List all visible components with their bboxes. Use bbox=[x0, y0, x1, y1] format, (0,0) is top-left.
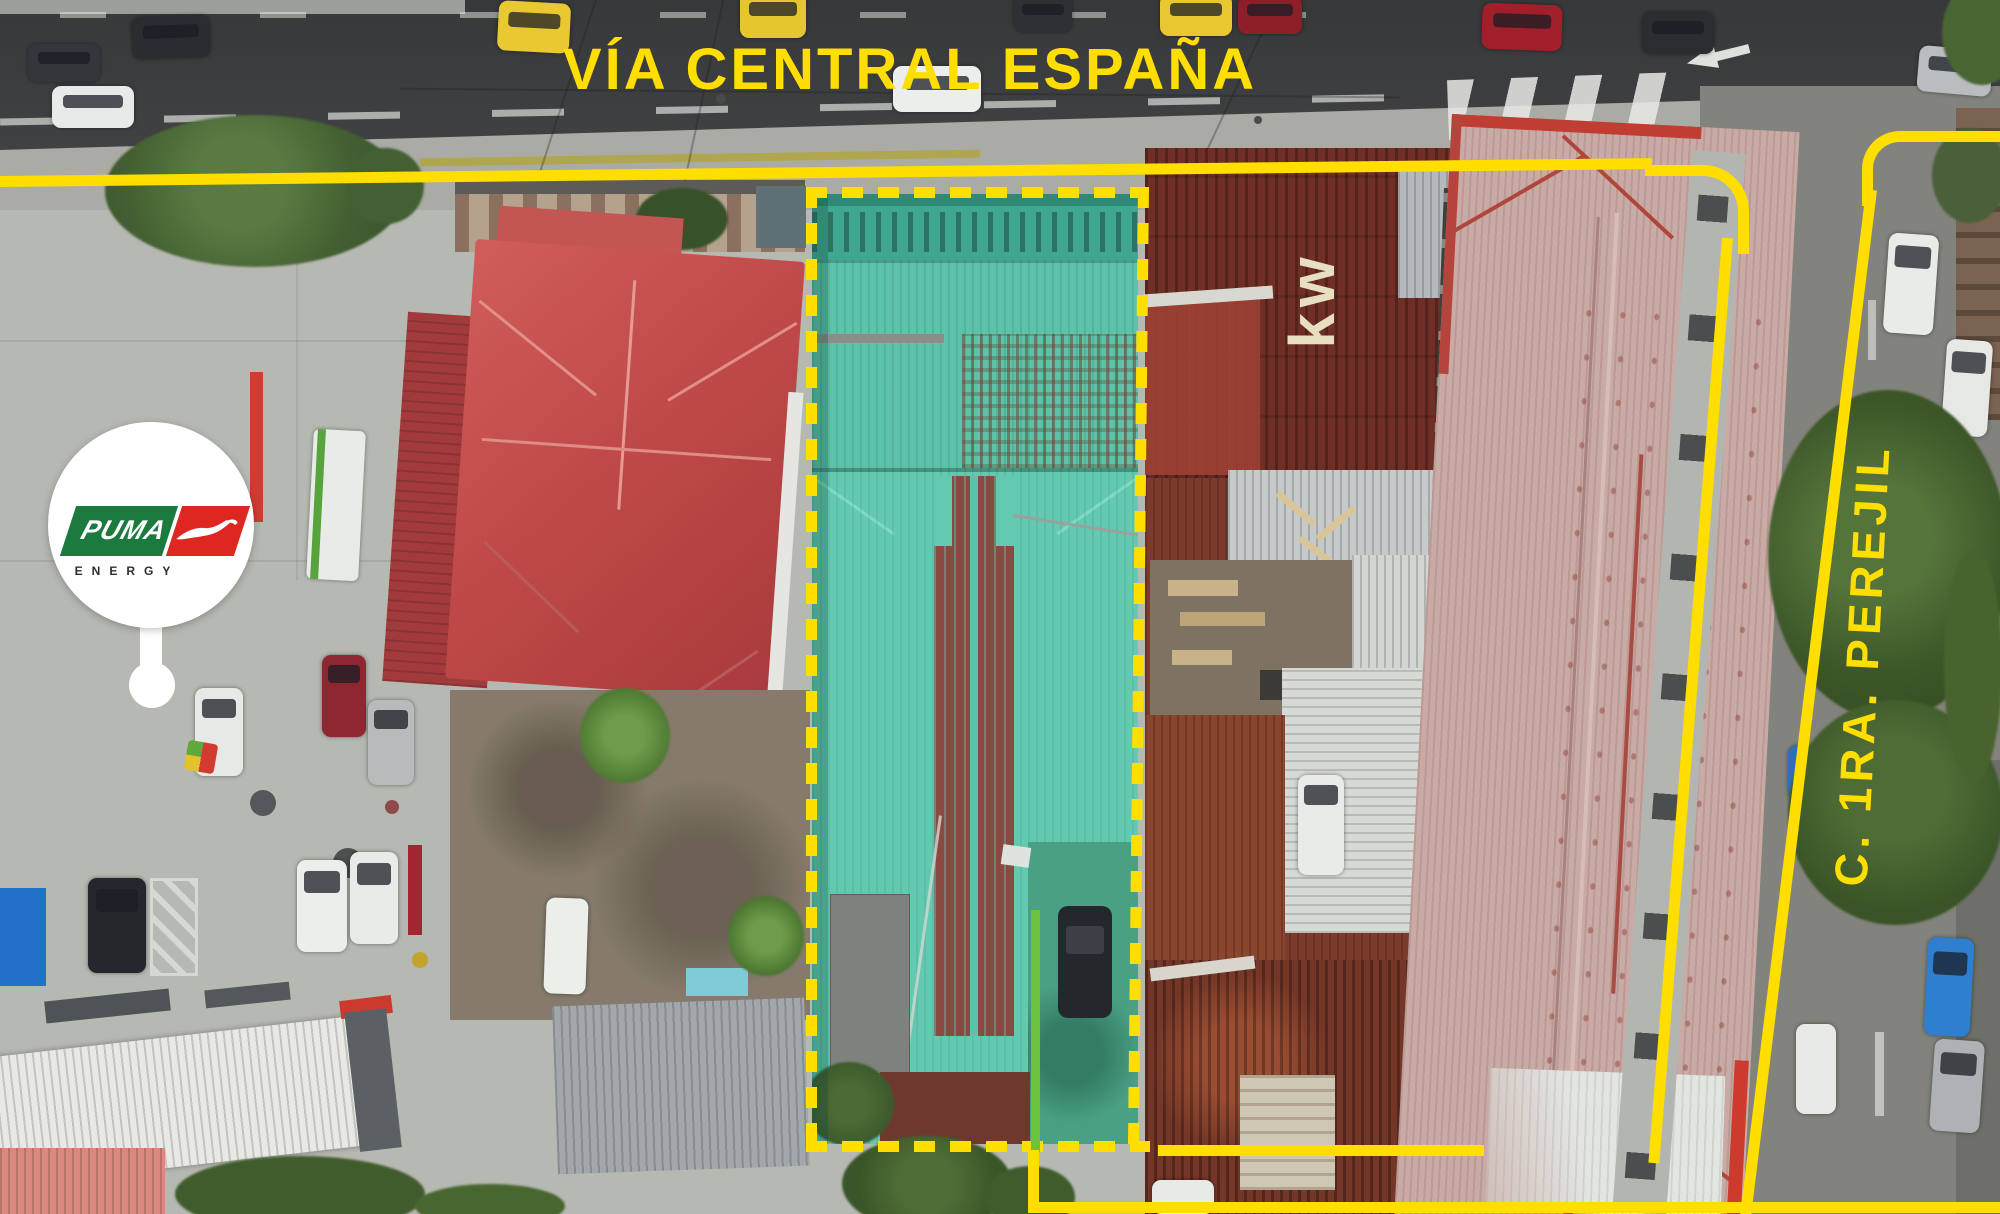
car-dark bbox=[28, 44, 100, 82]
pavement-dot bbox=[385, 800, 399, 814]
car-red bbox=[1481, 3, 1563, 52]
roof-ridge bbox=[482, 438, 772, 461]
street-tree-green bbox=[1944, 548, 2000, 783]
parapet-band bbox=[812, 194, 1138, 260]
logo-circle: PUMA ENERGY bbox=[48, 422, 254, 628]
boundary-left-stub bbox=[1028, 1150, 1039, 1213]
parcel-outline-bottom bbox=[806, 1141, 1150, 1152]
car-silver bbox=[1929, 1038, 1985, 1133]
roof-ridge bbox=[484, 541, 580, 633]
boundary-corner bbox=[1645, 165, 1749, 254]
gray-bar bbox=[814, 334, 944, 343]
palm-tree bbox=[580, 688, 670, 783]
car-red bbox=[1238, 0, 1302, 34]
car-silver bbox=[368, 700, 414, 785]
roof-painted-text: kw bbox=[1282, 200, 1342, 400]
car-dark bbox=[1014, 0, 1072, 32]
rusty-roof-bright-patch bbox=[1145, 300, 1260, 475]
logo-pin-dot bbox=[129, 662, 175, 708]
road-name-label: VÍA CENTRAL ESPAÑA bbox=[510, 36, 1310, 103]
taxi-yellow bbox=[740, 0, 806, 38]
panel-dark bbox=[44, 989, 171, 1024]
rusty-shed-mid bbox=[1145, 715, 1285, 965]
canopy-edge-red bbox=[250, 372, 263, 522]
white-object bbox=[1001, 844, 1032, 868]
puma-cat-icon bbox=[172, 517, 241, 545]
fuel-truck bbox=[306, 429, 366, 582]
teal-shed-small bbox=[686, 968, 748, 996]
panel-dark bbox=[204, 982, 290, 1009]
car-white bbox=[350, 852, 398, 944]
rust-strip-notch bbox=[934, 476, 952, 546]
big-tree-part bbox=[348, 148, 424, 224]
roof-ridge bbox=[667, 322, 797, 402]
car-white bbox=[52, 86, 134, 128]
rust-strip-notch bbox=[996, 476, 1014, 546]
car-dark bbox=[1642, 12, 1714, 54]
street-dash bbox=[1868, 300, 1876, 360]
street-dash bbox=[1875, 1032, 1884, 1116]
pink-building-roof bbox=[1394, 114, 1799, 1214]
boundary-bottom bbox=[1028, 1202, 2000, 1213]
blue-container bbox=[0, 888, 46, 986]
hatched-zone bbox=[150, 878, 198, 976]
logo-red-panel bbox=[166, 506, 250, 556]
car-red-partial bbox=[408, 845, 422, 935]
car-dark bbox=[131, 15, 210, 60]
white-pickup bbox=[1298, 775, 1344, 875]
pavement-dot bbox=[412, 952, 428, 968]
roof-ridge bbox=[617, 280, 636, 510]
parcel-outline-left bbox=[806, 187, 817, 1152]
bottom-green-strip bbox=[175, 1156, 425, 1214]
logo-green-panel: PUMA bbox=[60, 506, 178, 556]
lot-seam bbox=[0, 340, 455, 342]
roof-ridge bbox=[478, 300, 596, 397]
car-white bbox=[1883, 232, 1940, 335]
car-white bbox=[1796, 1024, 1836, 1114]
car-dark-suv bbox=[88, 878, 146, 973]
bottom-green-strip bbox=[415, 1184, 565, 1214]
aerial-photo: kw bbox=[0, 0, 2000, 1214]
parked-car-dark bbox=[1058, 906, 1112, 1018]
pavement-sign bbox=[184, 740, 219, 775]
gray-annex-roof bbox=[830, 894, 910, 1074]
roof-seam bbox=[812, 260, 1138, 263]
parcel-outline-top bbox=[806, 187, 1147, 198]
car-blue bbox=[1923, 937, 1974, 1037]
maroon-flat-roof bbox=[880, 1072, 1030, 1144]
white-gable-end bbox=[1486, 1068, 1726, 1214]
green-divider-line bbox=[1031, 910, 1040, 1152]
salmon-roof bbox=[0, 1148, 165, 1214]
blue-shed bbox=[756, 186, 806, 248]
boundary-segment-a bbox=[1158, 1145, 1484, 1156]
red-house-roof bbox=[445, 239, 805, 701]
white-patch bbox=[1240, 1075, 1335, 1190]
logo-subtitle-text: ENERGY bbox=[72, 564, 182, 578]
car-white bbox=[543, 897, 588, 994]
highlighted-parcel bbox=[812, 194, 1138, 1144]
street-line-top bbox=[1925, 131, 2000, 142]
logo-brand-text: PUMA bbox=[77, 515, 171, 546]
car-white bbox=[297, 860, 347, 952]
rust-speckle-patch bbox=[962, 334, 1138, 468]
rust-strip-divider bbox=[970, 476, 978, 1036]
taxi-yellow bbox=[1160, 0, 1232, 36]
utility-pole bbox=[1254, 116, 1262, 124]
warehouse-roof-silver bbox=[552, 998, 810, 1175]
pavement-dot bbox=[250, 790, 276, 816]
facade-fence bbox=[455, 180, 805, 194]
palm-tree bbox=[728, 896, 804, 976]
car-red bbox=[322, 655, 366, 737]
